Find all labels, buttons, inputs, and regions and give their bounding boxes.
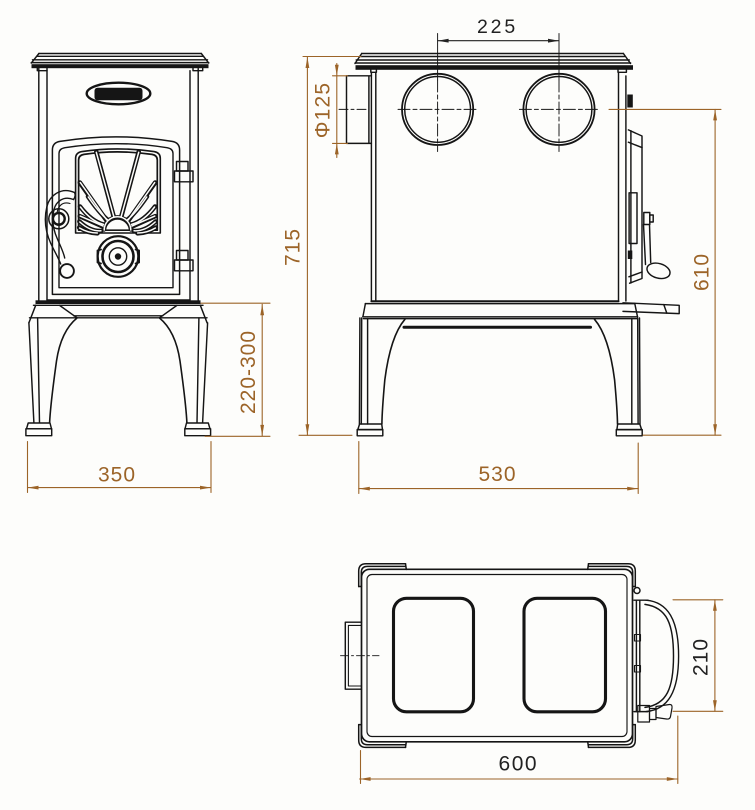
svg-text:225: 225 — [477, 16, 518, 38]
svg-text:600: 600 — [499, 753, 539, 776]
svg-text:610: 610 — [691, 253, 714, 291]
svg-text:715: 715 — [282, 228, 305, 266]
svg-text:Φ125: Φ125 — [312, 82, 335, 139]
svg-text:210: 210 — [690, 638, 713, 676]
svg-text:350: 350 — [98, 464, 136, 487]
svg-text:530: 530 — [478, 463, 516, 486]
svg-text:220-300: 220-300 — [237, 330, 260, 414]
